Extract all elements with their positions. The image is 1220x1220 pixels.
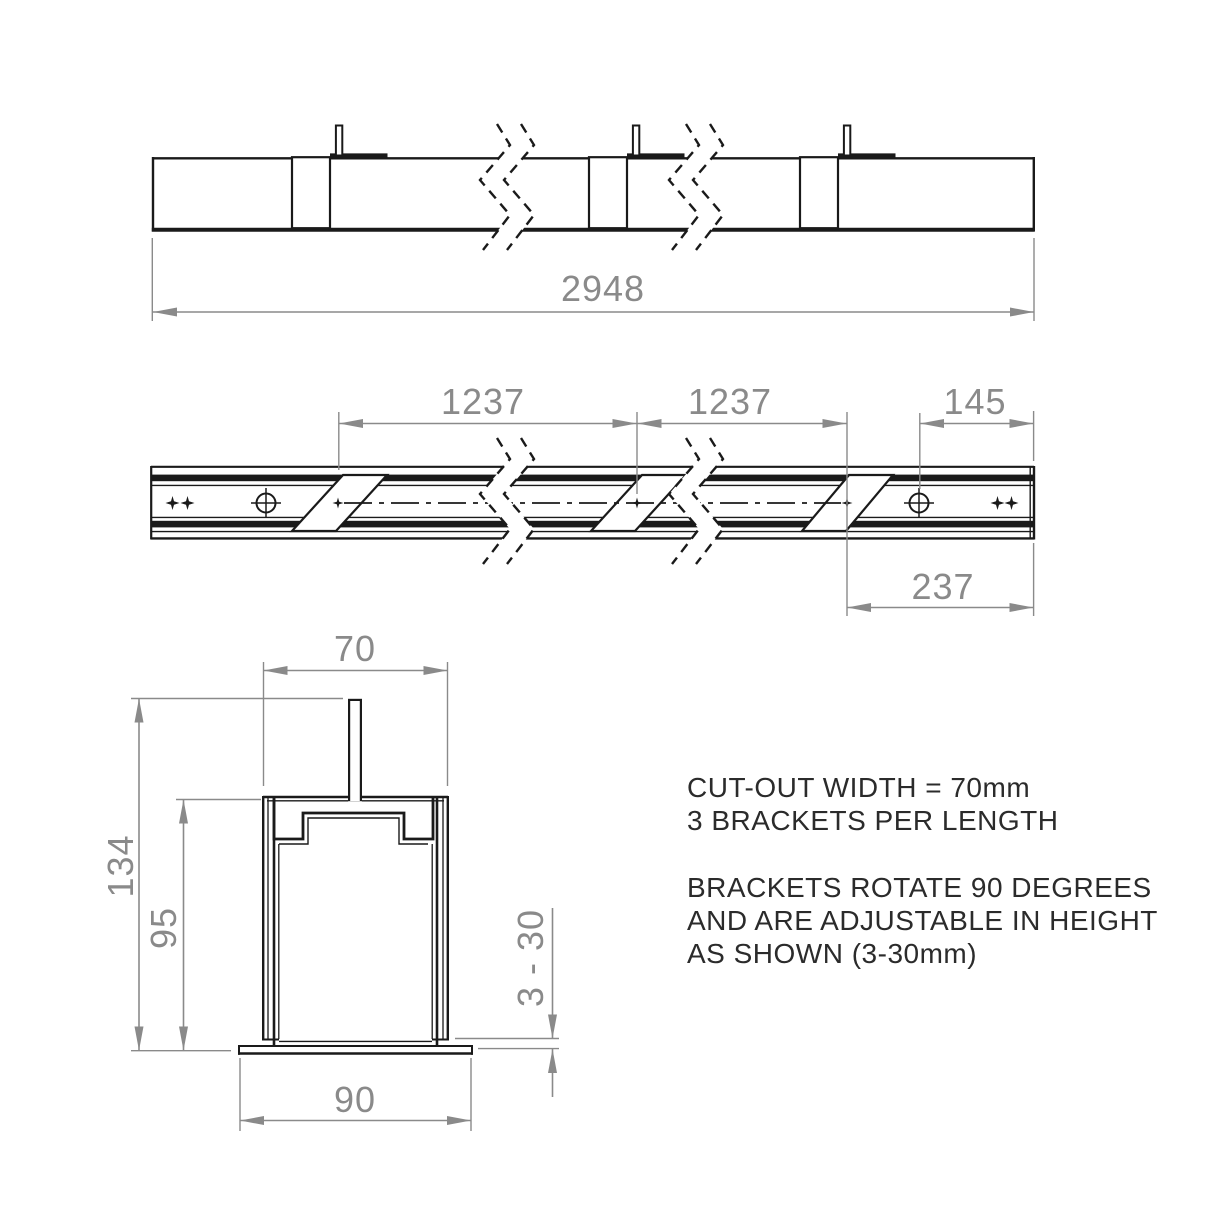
luminaire-profile-drawing: 2948 <box>0 0 1220 1220</box>
dimension-value: 70 <box>334 628 376 669</box>
bracket-2-pin <box>633 126 639 156</box>
arrowhead-down-icon <box>179 1027 188 1051</box>
note-line: BRACKETS ROTATE 90 DEGREES <box>687 872 1152 903</box>
arrowhead-right-icon <box>424 666 448 675</box>
center-mark-icon <box>904 488 934 518</box>
section-pin <box>348 699 362 802</box>
pin-mask <box>348 699 362 802</box>
dimension-value: 90 <box>334 1079 376 1120</box>
arrowhead-right-icon <box>1010 603 1034 612</box>
arrowhead-up-icon <box>179 800 188 824</box>
bracket-3 <box>800 157 838 228</box>
fixing-marker-icon <box>181 496 195 510</box>
bracket-3-pin <box>844 126 850 156</box>
dimension-value: 3 - 30 <box>510 909 551 1007</box>
dimension-value: 95 <box>143 907 184 949</box>
arrowhead-left-icon <box>264 666 288 675</box>
break-mask <box>480 438 534 564</box>
arrowhead-right-icon <box>1010 308 1034 317</box>
plan-top-band <box>152 475 1033 482</box>
break-symbol <box>480 438 534 564</box>
dimension-value: 2948 <box>561 268 645 309</box>
dimension-value: 237 <box>911 566 974 607</box>
section-view: 70 134 95 90 <box>100 628 559 1131</box>
break-mask <box>669 438 723 564</box>
arrowhead-left-icon <box>339 419 363 428</box>
fixing-marker-icon <box>991 496 1005 510</box>
arrowhead-left-icon <box>920 419 944 428</box>
note-line: 3 BRACKETS PER LENGTH <box>687 805 1058 836</box>
dimension-value: 134 <box>100 834 141 897</box>
fixing-marker-icon <box>1005 496 1019 510</box>
top-view-side-elevation: 2948 <box>152 124 1035 321</box>
center-mark-icon <box>251 488 281 518</box>
arrowhead-right-icon <box>447 1116 471 1125</box>
arrowhead-left-icon <box>153 308 177 317</box>
fixing-marker-icon <box>166 496 180 510</box>
arrowhead-right-icon <box>613 419 637 428</box>
arrowhead-down-icon <box>548 1015 557 1039</box>
dimension-value: 145 <box>943 381 1006 422</box>
dimension-bracket-spacing-2: 1237 <box>638 381 848 616</box>
arrowhead-left-icon <box>240 1116 264 1125</box>
notes-block: CUT-OUT WIDTH = 70mm 3 BRACKETS PER LENG… <box>687 772 1158 969</box>
technical-drawing-page: 2948 <box>0 0 1220 1220</box>
dimension-overall-height: 134 <box>100 699 343 1051</box>
note-line: CUT-OUT WIDTH = 70mm <box>687 772 1030 803</box>
dimension-value: 1237 <box>688 381 772 422</box>
arrowhead-down-icon <box>135 1027 144 1051</box>
dimension-bracket-end-distance: 237 <box>847 543 1034 616</box>
dimension-body-height: 95 <box>143 800 261 1051</box>
dimension-overall-length: 2948 <box>152 238 1034 321</box>
arrowhead-up-icon <box>135 699 144 723</box>
bracket-1 <box>292 157 330 228</box>
dimension-flange-width: 90 <box>240 1058 471 1131</box>
break-symbol <box>669 438 723 564</box>
bracket-2 <box>589 157 627 228</box>
note-line: AND ARE ADJUSTABLE IN HEIGHT <box>687 905 1158 936</box>
dimension-hole-end-offset: 145 <box>920 381 1034 489</box>
arrowhead-up-icon <box>548 1049 557 1073</box>
arrowhead-left-icon <box>638 419 662 428</box>
dimension-value: 1237 <box>441 381 525 422</box>
bracket-1-pin <box>336 126 342 156</box>
arrowhead-right-icon <box>1010 419 1034 428</box>
plan-view: 1237 1237 145 237 <box>151 381 1034 616</box>
arrowhead-left-icon <box>847 603 871 612</box>
arrowhead-right-icon <box>823 419 847 428</box>
note-line: AS SHOWN (3-30mm) <box>687 938 977 969</box>
plan-bottom-band <box>152 521 1033 528</box>
